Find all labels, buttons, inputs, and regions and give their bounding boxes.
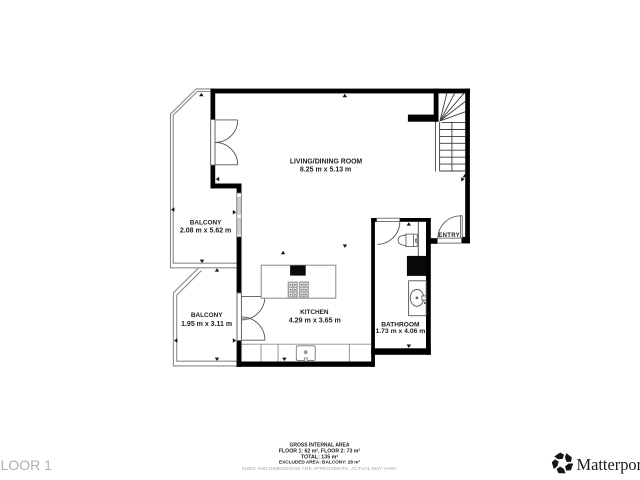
svg-text:EXCLUDED AREA: BALCONY: 28 m²: EXCLUDED AREA: BALCONY: 28 m² xyxy=(279,460,360,465)
svg-text:KITCHEN: KITCHEN xyxy=(300,309,329,316)
svg-text:SIZES AND DIMENSIONS ARE APPRO: SIZES AND DIMENSIONS ARE APPROXIMATE, AC… xyxy=(242,466,398,472)
svg-text:LIVING/DINING ROOM: LIVING/DINING ROOM xyxy=(290,159,363,166)
svg-text:2.08 m x 5.62 m: 2.08 m x 5.62 m xyxy=(180,227,231,234)
svg-text:FLOOR 1: FLOOR 1 xyxy=(0,457,52,473)
svg-text:1.95 m x 3.11 m: 1.95 m x 3.11 m xyxy=(181,321,232,328)
svg-text:8.25 m x 5.13 m: 8.25 m x 5.13 m xyxy=(300,167,351,174)
svg-text:BALCONY: BALCONY xyxy=(190,220,222,227)
svg-text:ENTRY: ENTRY xyxy=(438,233,460,239)
svg-text:BALCONY: BALCONY xyxy=(191,312,223,319)
svg-text:Matterport: Matterport xyxy=(577,455,640,474)
svg-text:1.73 m x 4.06 m: 1.73 m x 4.06 m xyxy=(375,328,425,335)
svg-text:4.29 m x 3.65 m: 4.29 m x 3.65 m xyxy=(289,316,341,324)
